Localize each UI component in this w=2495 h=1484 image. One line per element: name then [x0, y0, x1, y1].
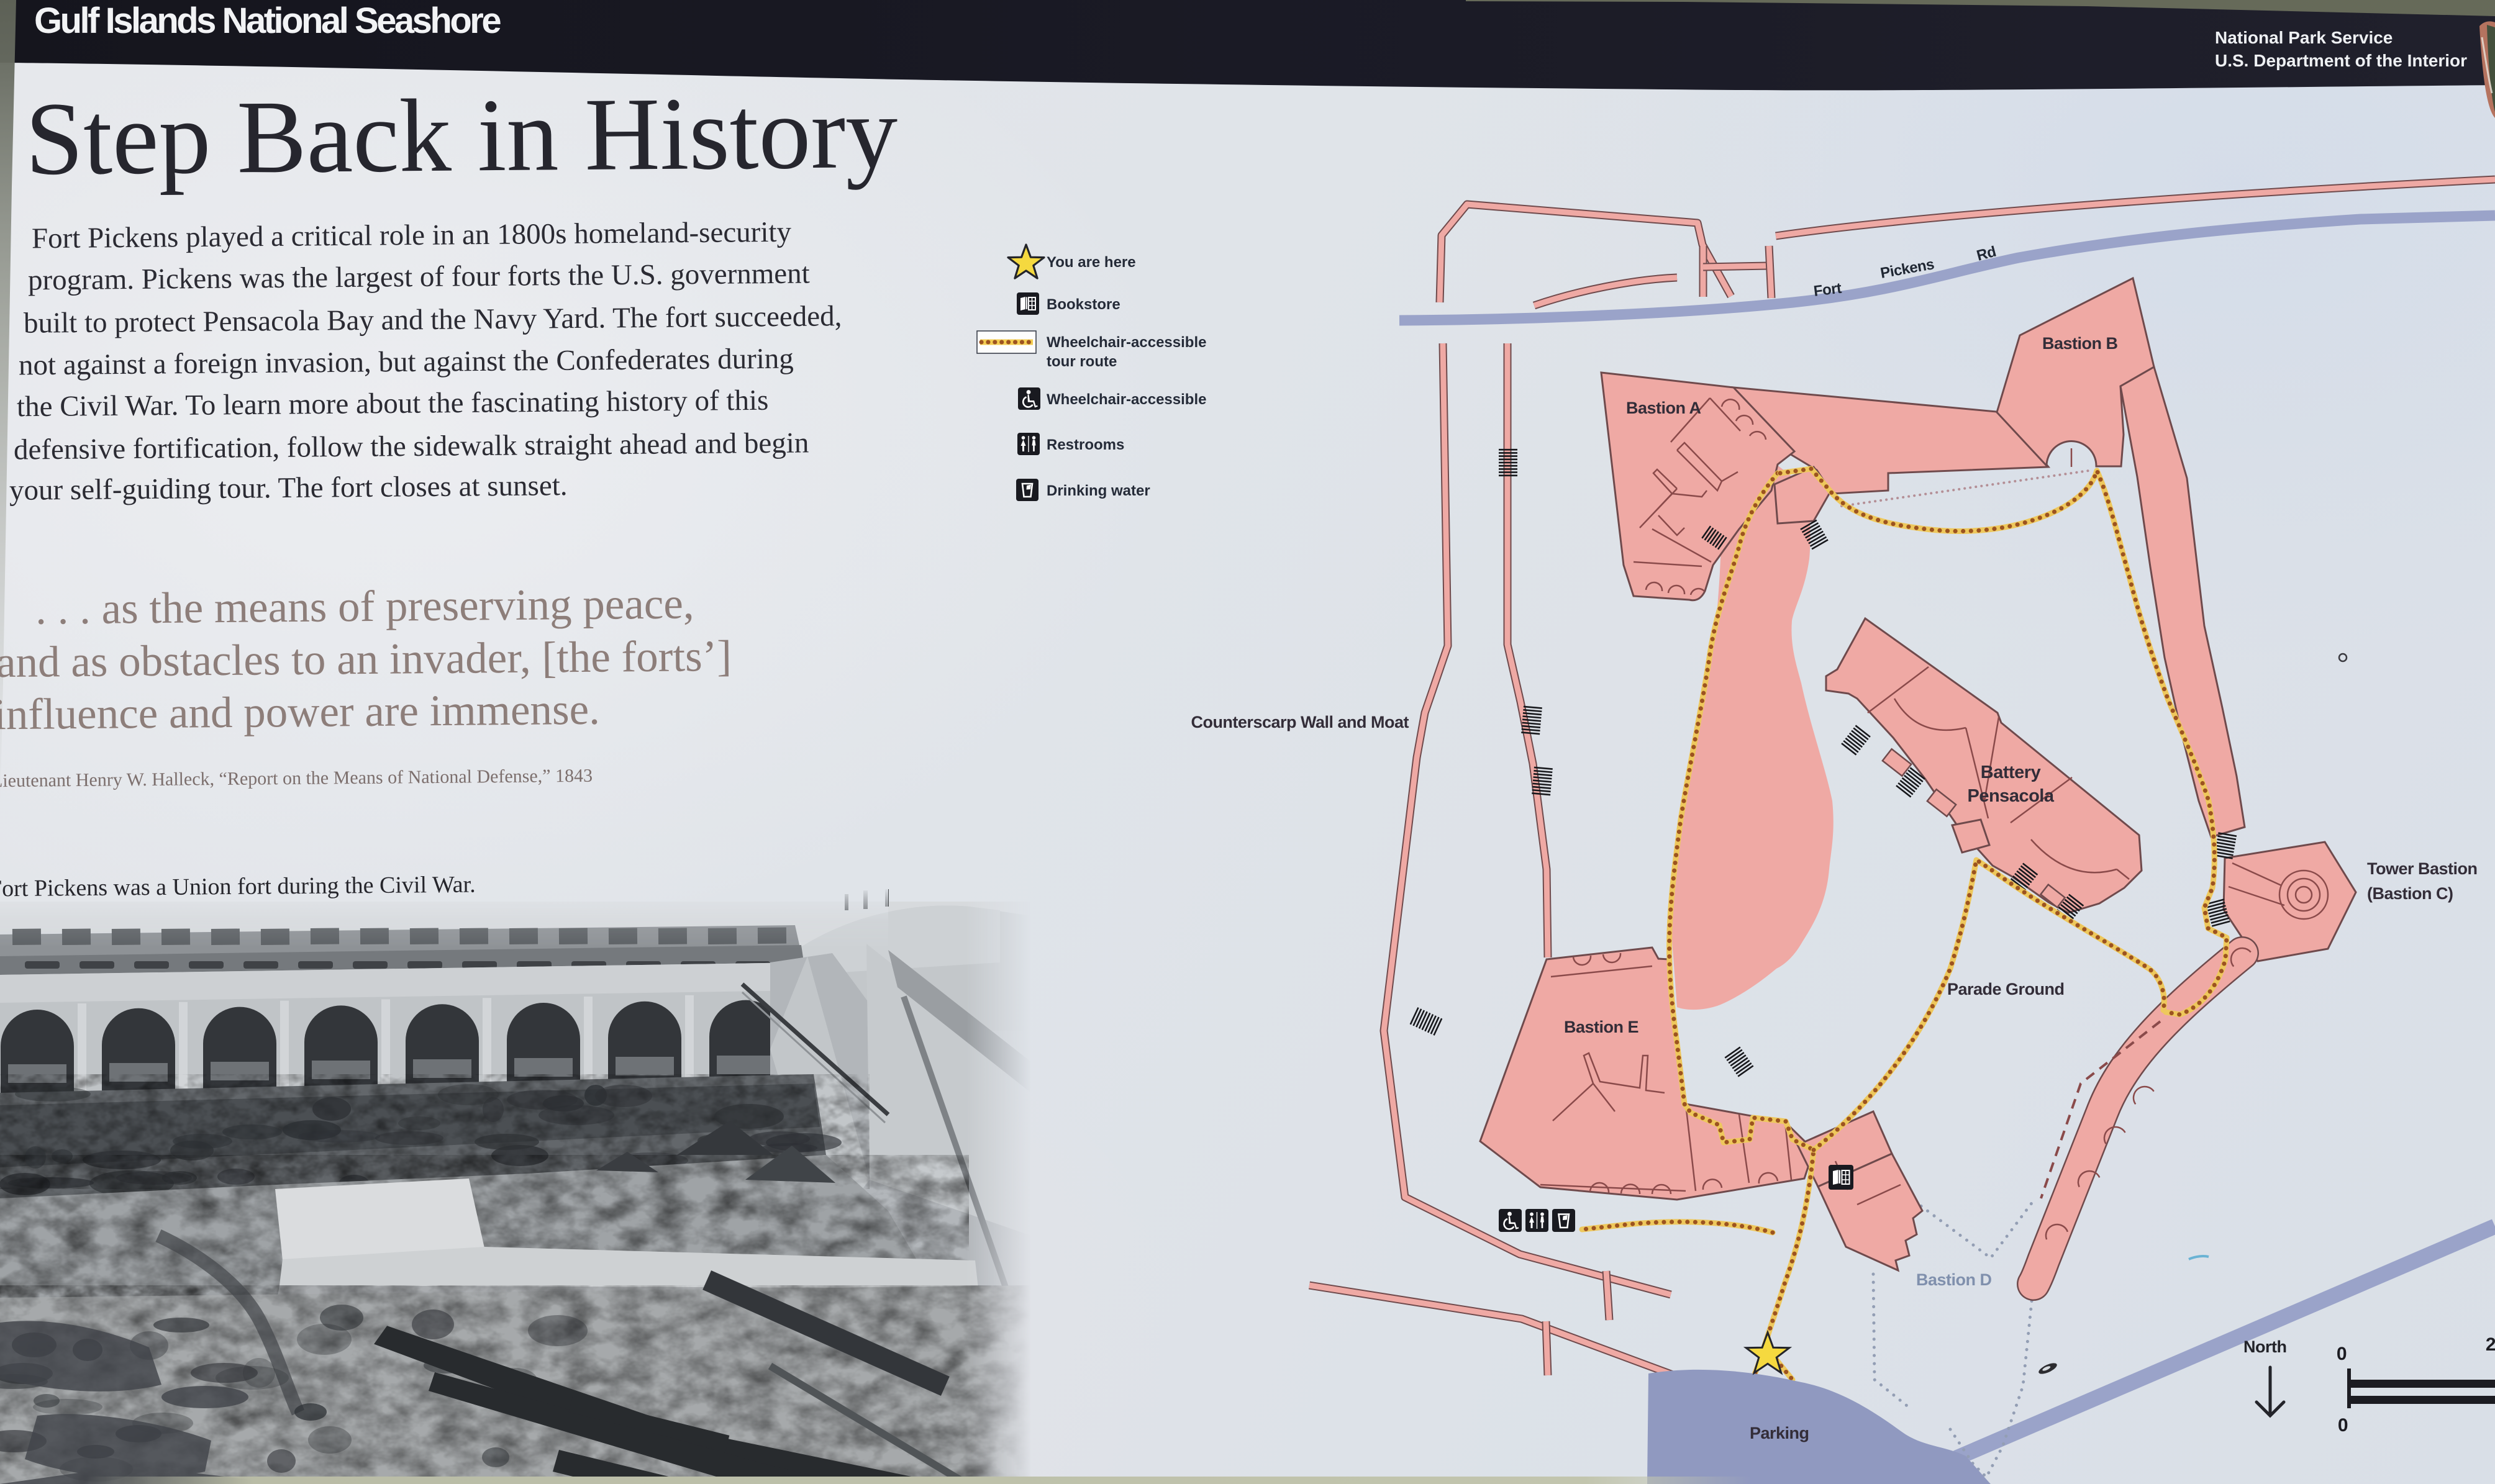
- svg-text:0: 0: [2338, 1415, 2348, 1436]
- svg-text:Tower Bastion: Tower Bastion: [2367, 859, 2478, 878]
- svg-text:0: 0: [2337, 1344, 2347, 1364]
- svg-text:(Bastion C): (Bastion C): [2367, 884, 2453, 903]
- svg-text:Parking: Parking: [1750, 1424, 1809, 1442]
- svg-text:Fort: Fort: [1812, 280, 1842, 300]
- svg-text:Bastion B: Bastion B: [2042, 334, 2118, 353]
- svg-text:Pensacola: Pensacola: [1968, 786, 2055, 806]
- svg-text:Parade Ground: Parade Ground: [1947, 980, 2065, 998]
- svg-text:2: 2: [2486, 1334, 2495, 1355]
- svg-text:Bastion E: Bastion E: [1564, 1018, 1638, 1036]
- svg-text:Bastion D: Bastion D: [1916, 1270, 1992, 1289]
- svg-text:Battery: Battery: [1981, 762, 2041, 782]
- svg-text:North: North: [2243, 1337, 2286, 1356]
- svg-text:Bastion A: Bastion A: [1626, 399, 1701, 417]
- svg-text:Counterscarp Wall and Moat: Counterscarp Wall and Moat: [1191, 713, 1409, 731]
